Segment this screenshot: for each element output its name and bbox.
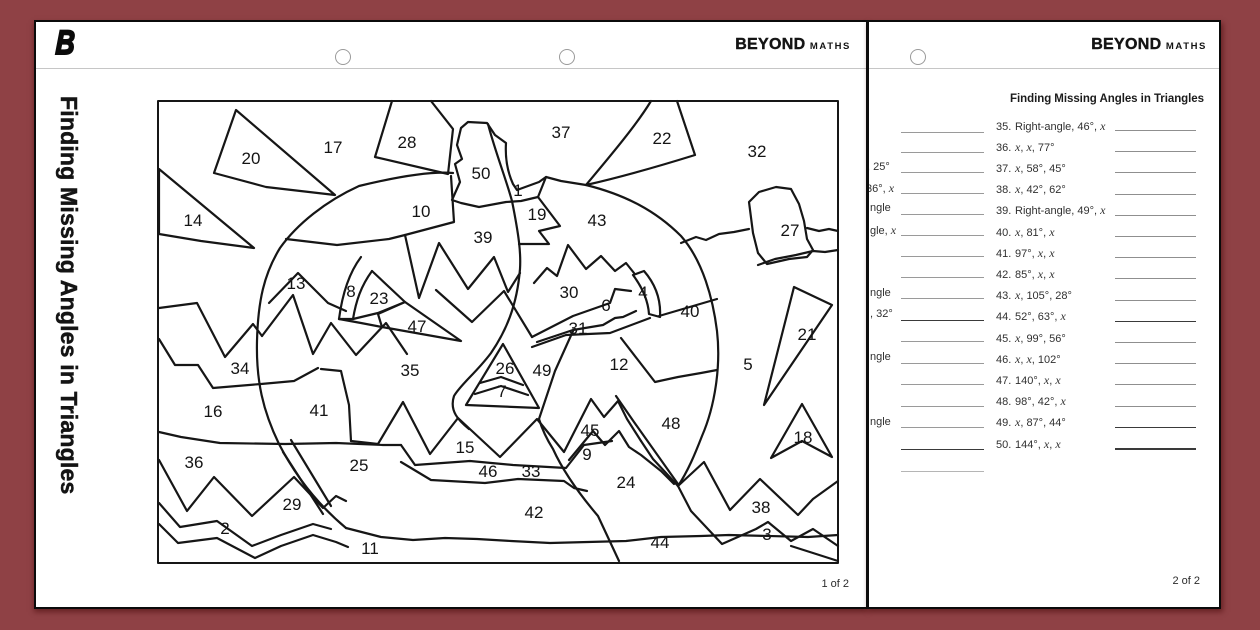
svg-text:28: 28 [398, 133, 417, 152]
svg-text:47: 47 [408, 317, 427, 336]
svg-text:44: 44 [651, 533, 670, 552]
svg-text:45: 45 [581, 421, 600, 440]
svg-text:1: 1 [513, 181, 522, 200]
svg-text:32: 32 [748, 142, 767, 161]
svg-text:49: 49 [533, 361, 552, 380]
svg-text:19: 19 [528, 205, 547, 224]
svg-text:41: 41 [310, 401, 329, 420]
svg-text:22: 22 [653, 129, 672, 148]
svg-text:34: 34 [231, 359, 250, 378]
svg-text:26: 26 [496, 359, 515, 378]
svg-text:43: 43 [588, 211, 607, 230]
svg-text:39: 39 [474, 228, 493, 247]
svg-text:13: 13 [287, 274, 306, 293]
svg-text:40: 40 [681, 302, 700, 321]
svg-text:37: 37 [552, 123, 571, 142]
svg-text:9: 9 [582, 445, 591, 464]
svg-text:36: 36 [185, 453, 204, 472]
svg-text:4: 4 [638, 283, 647, 302]
svg-text:21: 21 [798, 325, 817, 344]
svg-text:3: 3 [762, 525, 771, 544]
svg-text:5: 5 [743, 355, 752, 374]
svg-text:35: 35 [401, 361, 420, 380]
svg-text:6: 6 [601, 296, 610, 315]
svg-text:15: 15 [456, 438, 475, 457]
svg-text:7: 7 [497, 382, 506, 401]
svg-text:12: 12 [610, 355, 629, 374]
svg-text:30: 30 [560, 283, 579, 302]
svg-text:8: 8 [346, 282, 355, 301]
svg-text:46: 46 [479, 462, 498, 481]
svg-text:42: 42 [525, 503, 544, 522]
svg-text:25: 25 [350, 456, 369, 475]
svg-text:50: 50 [472, 164, 491, 183]
svg-text:20: 20 [242, 149, 261, 168]
svg-text:48: 48 [662, 414, 681, 433]
svg-text:17: 17 [324, 138, 343, 157]
svg-text:33: 33 [522, 462, 541, 481]
svg-text:14: 14 [184, 211, 203, 230]
svg-text:27: 27 [781, 221, 800, 240]
svg-text:11: 11 [361, 539, 379, 558]
svg-text:31: 31 [569, 319, 588, 338]
svg-text:24: 24 [617, 473, 636, 492]
svg-text:38: 38 [752, 498, 771, 517]
svg-text:29: 29 [283, 495, 302, 514]
svg-text:16: 16 [204, 402, 223, 421]
svg-text:2: 2 [220, 519, 229, 538]
svg-text:10: 10 [412, 202, 431, 221]
svg-text:18: 18 [794, 428, 813, 447]
svg-text:23: 23 [370, 289, 389, 308]
